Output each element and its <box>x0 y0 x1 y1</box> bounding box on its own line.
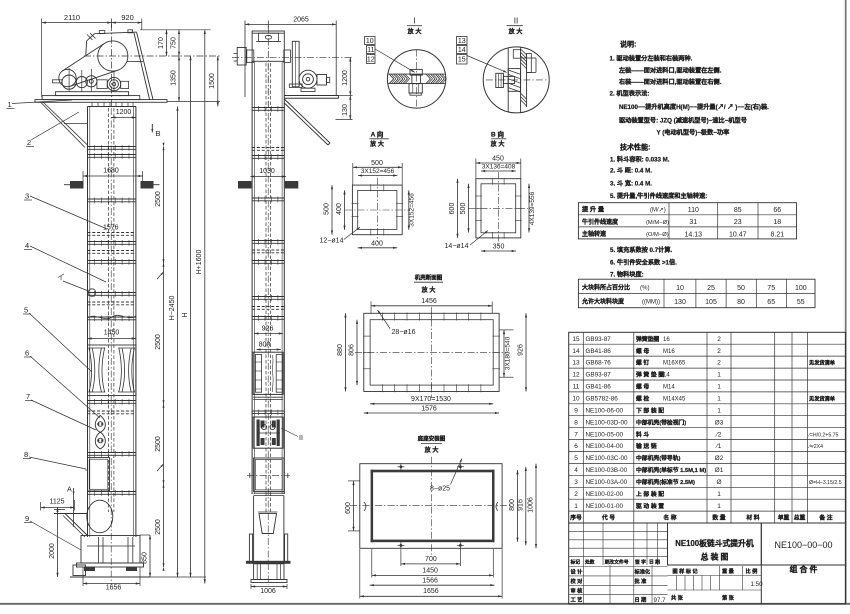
svg-text:1006: 1006 <box>528 497 535 513</box>
svg-text:共 张: 共 张 <box>671 594 684 602</box>
svg-text:日 期: 日 期 <box>649 559 660 566</box>
svg-text:∕1: ∕1 <box>715 443 722 450</box>
svg-text:比 例: 比 例 <box>746 567 758 575</box>
svg-text:1: 1 <box>717 503 721 510</box>
svg-text:大块料所占百分比: 大块料所占百分比 <box>582 284 630 292</box>
svg-text:500: 500 <box>460 203 467 215</box>
svg-text:3: 3 <box>574 479 578 486</box>
svg-text:驱动装置型号: JZQ (减速机型号)−速比−机型号: 驱动装置型号: JZQ (减速机型号)−速比−机型号 <box>619 117 747 125</box>
svg-text:700: 700 <box>425 556 437 563</box>
svg-text:1030: 1030 <box>259 168 275 175</box>
svg-text:12−ø14: 12−ø14 <box>320 238 344 245</box>
svg-text:2: 2 <box>574 491 578 498</box>
svg-text:2. 机型表示法:: 2. 机型表示法: <box>610 90 650 98</box>
svg-text:10: 10 <box>366 38 374 45</box>
svg-text:技术性能:: 技术性能: <box>620 143 650 152</box>
svg-text:6: 6 <box>574 443 578 450</box>
svg-text:1350: 1350 <box>171 70 178 86</box>
svg-text:97.7: 97.7 <box>654 597 667 604</box>
svg-text:料 斗: 料 斗 <box>636 430 649 438</box>
svg-text:∕2: ∕2 <box>715 431 722 438</box>
svg-text:806: 806 <box>349 344 356 356</box>
svg-text:2. 斗 距: 0.4 M.: 2. 斗 距: 0.4 M. <box>610 167 652 175</box>
svg-text:日 期: 日 期 <box>635 596 647 604</box>
svg-text:M14: M14 <box>663 385 675 391</box>
svg-text:14−ø14: 14−ø14 <box>445 243 469 250</box>
svg-text:23: 23 <box>734 219 742 226</box>
svg-text:驱 动 装 置: 驱 动 装 置 <box>636 502 664 510</box>
svg-text:3X152=456: 3X152=456 <box>409 193 416 227</box>
svg-text:55: 55 <box>797 299 805 306</box>
svg-text:14: 14 <box>663 373 670 379</box>
svg-text:400: 400 <box>371 240 383 247</box>
svg-text:5: 5 <box>24 306 28 315</box>
svg-text:II: II <box>514 17 518 26</box>
svg-text:1125: 1125 <box>49 499 64 506</box>
svg-text:NE100-03B-00: NE100-03B-00 <box>586 467 628 474</box>
svg-text:2065: 2065 <box>293 17 309 24</box>
svg-text:130: 130 <box>342 104 349 116</box>
svg-text:代 号: 代 号 <box>601 514 615 522</box>
svg-text:螺 钉: 螺 钉 <box>636 359 649 367</box>
svg-text:1200: 1200 <box>342 70 349 86</box>
svg-text:14: 14 <box>458 47 466 54</box>
svg-text:1576: 1576 <box>421 405 437 412</box>
svg-text:∕=∕2X4: ∕=∕2X4 <box>807 444 823 450</box>
svg-text:2500: 2500 <box>155 334 162 350</box>
svg-text:放 大: 放 大 <box>490 140 505 148</box>
svg-text:28−ø16: 28−ø16 <box>392 329 416 336</box>
svg-text:916: 916 <box>517 499 524 511</box>
svg-text:见发货清单: 见发货清单 <box>809 359 836 367</box>
svg-text:1456: 1456 <box>421 298 437 305</box>
svg-text:中部机壳(带检视门): 中部机壳(带检视门) <box>636 418 686 426</box>
svg-text:放 大: 放 大 <box>508 28 523 36</box>
svg-text:放 大: 放 大 <box>424 446 439 454</box>
svg-text:右装——面对进料口,驱动装置在右侧.: 右装——面对进料口,驱动装置在右侧. <box>619 78 722 86</box>
svg-text:NE100−−提升机高度H(M)−−提升量(↗/ ↗ )−−: NE100−−提升机高度H(M)−−提升量(↗/ ↗ )−−左(右)装. <box>619 103 769 111</box>
svg-text:800: 800 <box>509 499 516 511</box>
svg-text:A: A <box>67 487 72 494</box>
svg-text:1450: 1450 <box>104 330 120 337</box>
svg-text:数 量: 数 量 <box>712 514 725 522</box>
svg-text:7. 物料块度:: 7. 物料块度: <box>610 271 644 279</box>
svg-text:75: 75 <box>767 285 775 292</box>
svg-text:350: 350 <box>493 244 505 251</box>
svg-text:Ø: Ø <box>716 479 721 486</box>
svg-text:((MM)): ((MM)) <box>642 300 660 306</box>
svg-text:螺 母: 螺 母 <box>636 383 649 391</box>
svg-text:66: 66 <box>773 207 781 214</box>
svg-text:400: 400 <box>336 203 343 215</box>
svg-text:12: 12 <box>367 57 375 64</box>
svg-text:NE100-06-00: NE100-06-00 <box>586 407 624 414</box>
svg-text:14.13: 14.13 <box>685 231 703 238</box>
svg-text:标准化: 标准化 <box>634 568 651 576</box>
svg-text:H: H <box>182 312 189 317</box>
svg-text:920: 920 <box>121 13 134 22</box>
svg-text:NE100-02-00: NE100-02-00 <box>586 491 624 498</box>
svg-text:12: 12 <box>572 372 580 379</box>
svg-text:110: 110 <box>688 207 699 214</box>
svg-text:9X170=1530: 9X170=1530 <box>411 396 451 403</box>
svg-text:(%): (%) <box>640 285 650 292</box>
svg-text:1:50: 1:50 <box>751 581 764 588</box>
svg-text:7: 7 <box>574 431 578 438</box>
svg-text:GB93-87: GB93-87 <box>586 372 612 379</box>
svg-text:底座安装图: 底座安装图 <box>417 435 446 443</box>
svg-text:2: 2 <box>717 360 721 367</box>
svg-text:2: 2 <box>717 336 721 343</box>
svg-text:B 向: B 向 <box>491 130 505 139</box>
svg-text:2110: 2110 <box>64 13 80 22</box>
svg-text:总重: 总重 <box>794 514 806 522</box>
svg-text:NE100-04-00: NE100-04-00 <box>586 443 624 450</box>
svg-text:450: 450 <box>492 156 504 163</box>
svg-text:中部机壳(带导轨): 中部机壳(带导轨) <box>636 454 681 462</box>
svg-text:80: 80 <box>737 299 745 306</box>
svg-text:提 升 量: 提 升 量 <box>582 206 605 214</box>
svg-text:审 核: 审 核 <box>571 586 584 594</box>
svg-text:8−ø25: 8−ø25 <box>430 486 450 493</box>
svg-text:1. 料斗容积: 0.033 M.: 1. 料斗容积: 0.033 M. <box>610 156 670 164</box>
svg-text:NE100-03D-00: NE100-03D-00 <box>586 419 629 426</box>
svg-text:标记: 标记 <box>570 559 581 566</box>
svg-text:GB5782-86: GB5782-86 <box>586 396 619 403</box>
svg-text:更改文件号: 更改文件号 <box>605 559 629 566</box>
svg-text:105: 105 <box>705 299 717 306</box>
svg-text:材 料: 材 料 <box>745 514 759 522</box>
svg-text:15: 15 <box>572 336 580 343</box>
svg-text:螺 栓: 螺 栓 <box>636 395 649 403</box>
svg-text:I: I <box>413 17 415 26</box>
svg-text:880: 880 <box>337 344 344 356</box>
svg-text:说明:: 说明: <box>620 40 636 49</box>
svg-text:NE100板链斗式提升机: NE100板链斗式提升机 <box>675 538 754 548</box>
svg-text:9: 9 <box>25 514 29 523</box>
svg-text:NE100−00−00: NE100−00−00 <box>774 540 832 550</box>
svg-text:14: 14 <box>572 348 580 355</box>
svg-text:(O/M−Ø): (O/M−Ø) <box>646 232 669 238</box>
svg-text:NE100-03C-00: NE100-03C-00 <box>586 455 629 462</box>
svg-text:750: 750 <box>171 37 178 49</box>
svg-text:Ø=H−3.15/2.5: Ø=H−3.15/2.5 <box>809 480 842 486</box>
svg-text:1006: 1006 <box>260 588 276 595</box>
svg-text:中部机壳(标准节 2.5M): 中部机壳(标准节 2.5M) <box>636 478 695 486</box>
svg-text:11: 11 <box>367 47 374 54</box>
svg-text:签 字: 签 字 <box>634 559 646 566</box>
svg-text:1: 1 <box>717 491 721 498</box>
svg-text:500: 500 <box>324 203 331 215</box>
svg-text:螺 母: 螺 母 <box>636 347 649 355</box>
svg-text:3X152=456: 3X152=456 <box>361 168 395 175</box>
svg-text:Ø3: Ø3 <box>715 419 724 426</box>
svg-text:15: 15 <box>458 57 466 64</box>
svg-text:3. 斗 宽: 0.4 M.: 3. 斗 宽: 0.4 M. <box>610 180 652 188</box>
svg-text:M16: M16 <box>663 349 675 355</box>
svg-text:130: 130 <box>674 299 686 306</box>
svg-text:放 大: 放 大 <box>369 140 384 148</box>
svg-text:单重: 单重 <box>778 514 790 522</box>
svg-text:1566: 1566 <box>422 577 438 584</box>
svg-text:1: 1 <box>717 396 721 403</box>
svg-text:重 量: 重 量 <box>722 567 735 575</box>
svg-text:NE100-05-00: NE100-05-00 <box>586 431 624 438</box>
svg-text:批 准: 批 准 <box>635 577 648 585</box>
svg-text:9: 9 <box>574 407 578 414</box>
svg-text:8.21: 8.21 <box>770 231 784 238</box>
svg-text:2500: 2500 <box>155 519 162 535</box>
svg-text:中部机壳(单标节 1.5M,1 M): 中部机壳(单标节 1.5M,1 M) <box>636 466 706 474</box>
svg-text:1500: 1500 <box>209 73 216 89</box>
svg-text:B: B <box>156 129 161 138</box>
svg-text:A 向: A 向 <box>371 130 384 139</box>
svg-text:3: 3 <box>25 192 29 201</box>
svg-text:设 计: 设 计 <box>571 568 584 576</box>
svg-text:926: 926 <box>262 326 274 333</box>
svg-text:主轴转速: 主轴转速 <box>582 230 606 238</box>
svg-text:图 样 标 记: 图 样 标 记 <box>673 567 699 575</box>
svg-text:1450: 1450 <box>422 568 438 575</box>
svg-text:名 称: 名 称 <box>663 514 676 522</box>
svg-text:2000: 2000 <box>49 543 56 559</box>
svg-text:1: 1 <box>8 100 12 109</box>
svg-text:6. 牛引件安全系数 >1倍.: 6. 牛引件安全系数 >1倍. <box>610 259 677 267</box>
svg-text:NE100-01-00: NE100-01-00 <box>586 503 624 510</box>
svg-text:H+1600: H+1600 <box>196 250 203 275</box>
svg-text:4: 4 <box>574 467 578 474</box>
svg-text:13: 13 <box>572 360 580 367</box>
svg-text:1: 1 <box>717 372 721 379</box>
svg-text:11: 11 <box>573 384 580 391</box>
svg-text:3X136=408: 3X136=408 <box>482 164 516 171</box>
svg-text:850: 850 <box>142 552 149 564</box>
svg-text:弹簧垫圈: 弹簧垫圈 <box>636 335 659 343</box>
svg-text:放 大: 放 大 <box>407 28 422 36</box>
svg-text:10: 10 <box>676 285 684 292</box>
svg-text:∕=H/0.2+5.75: ∕=H/0.2+5.75 <box>807 432 839 438</box>
svg-text:600: 600 <box>449 203 456 215</box>
svg-text:2500: 2500 <box>155 436 162 452</box>
svg-text:工 艺: 工 艺 <box>571 596 583 604</box>
svg-text:1656: 1656 <box>106 585 122 592</box>
svg-text:5: 5 <box>574 455 578 462</box>
svg-text:输 送 链: 输 送 链 <box>636 442 657 450</box>
svg-text:Y (电动机型号)−极数−功率: Y (电动机型号)−极数−功率 <box>657 129 731 137</box>
svg-text:5. 提升量,牛引件线速度和主轴转速:: 5. 提升量,牛引件线速度和主轴转速: <box>610 192 707 200</box>
svg-text:25: 25 <box>707 285 715 292</box>
svg-text:4: 4 <box>25 241 29 250</box>
svg-text:31: 31 <box>689 219 697 226</box>
svg-text:8: 8 <box>574 419 578 426</box>
svg-text:备 注: 备 注 <box>818 514 832 522</box>
svg-text:13: 13 <box>458 38 466 45</box>
svg-text:H−2450: H−2450 <box>169 296 176 321</box>
svg-text:1. 驱动装置分左装和右装两种.: 1. 驱动装置分左装和右装两种. <box>610 55 693 63</box>
svg-text:上 部 装 配: 上 部 装 配 <box>636 490 664 498</box>
svg-text:(M/↗): (M/↗) <box>650 208 666 214</box>
svg-text:Ø2: Ø2 <box>715 455 724 462</box>
svg-text:弹 簧 垫 圈: 弹 簧 垫 圈 <box>636 371 664 379</box>
svg-text:6: 6 <box>25 349 29 358</box>
svg-text:50: 50 <box>737 285 745 292</box>
svg-text:GB41-86: GB41-86 <box>586 348 612 355</box>
svg-text:机壳断面图: 机壳断面图 <box>414 274 443 282</box>
svg-text:800: 800 <box>259 342 271 349</box>
svg-text:处数: 处数 <box>584 559 595 566</box>
svg-text:600: 600 <box>345 502 352 514</box>
svg-text:5. 填充系数按 0.7计算.: 5. 填充系数按 0.7计算. <box>610 246 673 254</box>
svg-text:1: 1 <box>574 503 578 510</box>
svg-text:16: 16 <box>663 337 670 343</box>
svg-text:100: 100 <box>795 285 807 292</box>
svg-text:2: 2 <box>717 348 721 355</box>
svg-text:序号: 序号 <box>570 514 582 522</box>
svg-text:M16X65: M16X65 <box>663 361 686 367</box>
svg-text:3X180=540: 3X180=540 <box>505 336 512 370</box>
svg-text:(M/M−Ø): (M/M−Ø) <box>646 220 669 226</box>
svg-text:II: II <box>299 435 303 442</box>
svg-text:GB41-86: GB41-86 <box>586 384 612 391</box>
svg-text:左装——面对进料口,驱动装置在左侧.: 左装——面对进料口,驱动装置在左侧. <box>618 67 722 75</box>
svg-text:1200: 1200 <box>116 109 132 116</box>
svg-text:10: 10 <box>572 396 580 403</box>
svg-text:1: 1 <box>717 384 721 391</box>
svg-text:1656: 1656 <box>423 588 439 595</box>
svg-text:见发货清单: 见发货清单 <box>809 395 836 403</box>
svg-text:65: 65 <box>767 299 775 306</box>
svg-text:8: 8 <box>24 450 28 459</box>
svg-text:1680: 1680 <box>103 168 119 175</box>
svg-text:10.47: 10.47 <box>729 231 747 238</box>
svg-text:第 张: 第 张 <box>722 594 735 602</box>
svg-text:总 装 图: 总 装 图 <box>701 552 729 562</box>
svg-text:85: 85 <box>734 207 742 214</box>
svg-text:NE100-03A-00: NE100-03A-00 <box>586 479 628 486</box>
svg-text:校 对: 校 对 <box>571 577 584 585</box>
svg-text:允许大块料块度: 允许大块料块度 <box>581 298 625 306</box>
svg-text:18: 18 <box>773 219 781 226</box>
svg-text:牛引件线速度: 牛引件线速度 <box>582 218 619 226</box>
svg-text:GB68-76: GB68-76 <box>586 360 612 367</box>
svg-text:170: 170 <box>158 37 165 49</box>
svg-text:2: 2 <box>27 138 31 147</box>
svg-text:4X139=556: 4X139=556 <box>529 191 536 225</box>
svg-text:1: 1 <box>717 407 721 414</box>
svg-text:926: 926 <box>518 344 525 356</box>
svg-text:GB93-87: GB93-87 <box>586 336 612 343</box>
svg-text:放 大: 放 大 <box>421 286 436 294</box>
svg-text:500: 500 <box>371 160 383 167</box>
svg-text:M14X45: M14X45 <box>663 397 686 403</box>
svg-text:组 合 件: 组 合 件 <box>790 564 818 574</box>
svg-text:7: 7 <box>26 392 30 401</box>
svg-text:下 部 装 配: 下 部 装 配 <box>636 406 664 414</box>
svg-text:2500: 2500 <box>155 191 162 207</box>
svg-text:Ø1: Ø1 <box>715 467 724 474</box>
